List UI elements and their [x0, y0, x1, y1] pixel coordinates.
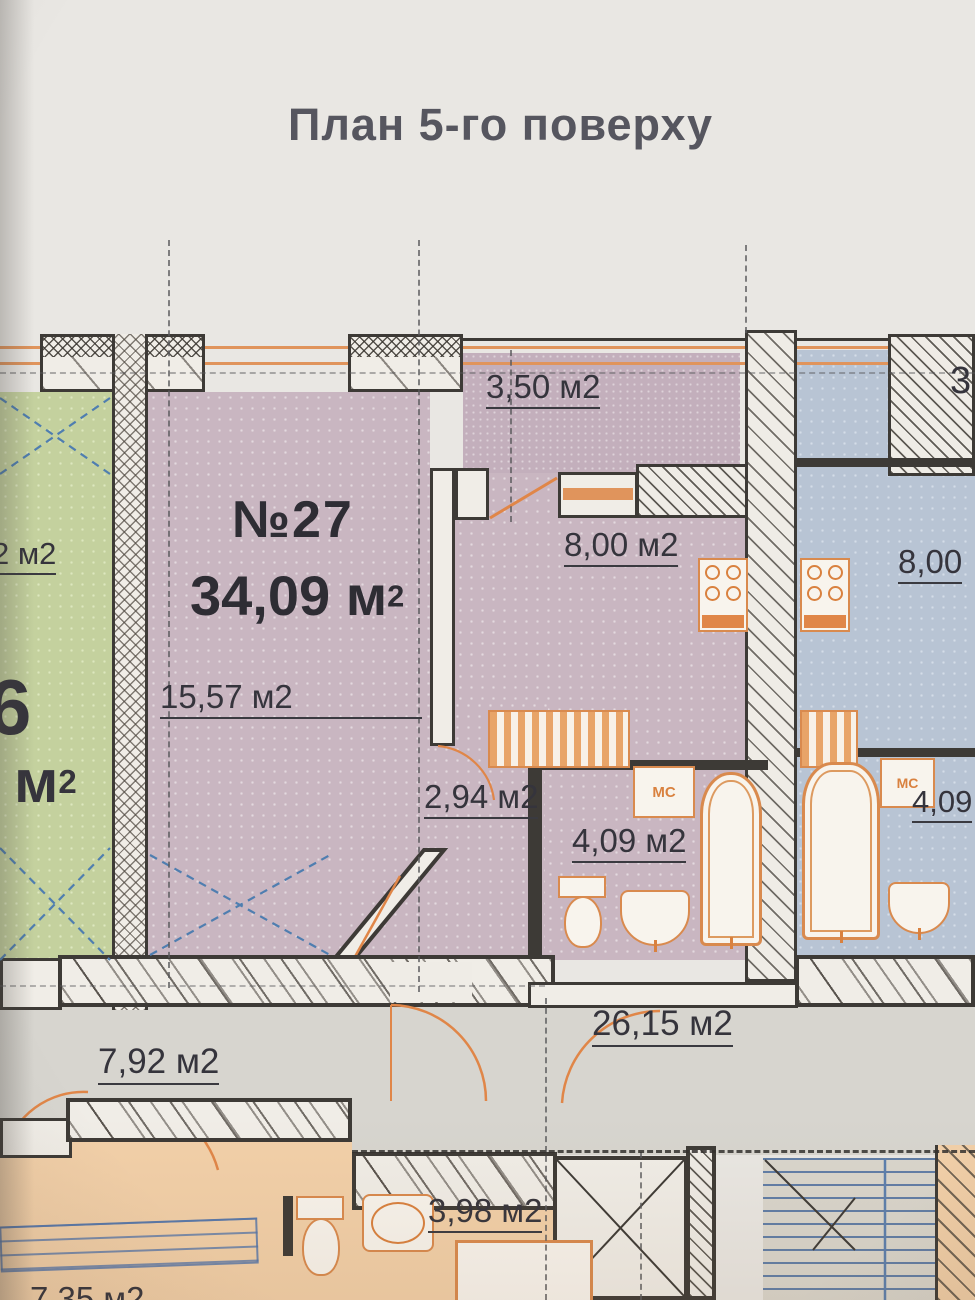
axis-line: [168, 240, 170, 988]
facade-pier-right: [888, 334, 975, 476]
shower-room-lower: [455, 1240, 593, 1300]
washing-machine-icon-apt27: МС: [633, 766, 695, 818]
apt27-balcony-area-label: 3,50 м2: [486, 370, 600, 409]
facade-pier-mid: [348, 334, 463, 392]
living-room-chamfer-wall: [322, 838, 447, 968]
right-apartment-kitchen-area-label: 8,00: [898, 545, 962, 584]
axis-line: [0, 985, 545, 987]
entry-hall-area-label: 7,92 м2: [98, 1044, 219, 1085]
wall-left-column: [112, 334, 148, 1010]
left-apartment-total-digit-label: 6: [0, 668, 31, 746]
kitchen-counter-right-apartment: [800, 710, 858, 768]
stove-icon-apt27: [698, 558, 748, 632]
balcony-door-jamb: [455, 468, 489, 520]
wall-apartments-corridor: [58, 955, 555, 1007]
toilet-tank-icon-apt27: [558, 876, 606, 898]
axis-line: [545, 998, 547, 1300]
bathtub-icon-apt27: [700, 772, 762, 946]
toilet-partition-lower: [283, 1196, 293, 1256]
right-apartment-balcony-area-label: 3: [950, 362, 971, 400]
cross-mark-green-bottom: [0, 845, 112, 963]
page-title: План 5-го поверху: [288, 102, 713, 147]
apt27-total-area-label: 34,09 м2: [190, 568, 404, 624]
kitchen-counter-apt27: [488, 710, 630, 768]
apt27-hall-area-label: 2,94 м2: [424, 780, 538, 819]
wall-bottom-left-step: [0, 958, 62, 1010]
apt27-entrance-gap: [390, 962, 472, 1002]
wall-right-apartment-corridor: [795, 955, 975, 1007]
bathtub-icon-right-apartment: [802, 762, 880, 940]
staircase: [763, 1158, 937, 1300]
axis-line: [745, 245, 747, 333]
wall-corridor-bottom-left: [66, 1098, 352, 1142]
toilet-bowl-icon-apt27: [564, 896, 602, 948]
wall-balcony-kitchen: [636, 464, 748, 518]
left-apartment-total-unit-label: м2: [14, 752, 77, 812]
sink-icon-lower: [362, 1194, 434, 1252]
left-apartment-room-area-label: 2 м2: [0, 538, 56, 575]
wall-bottom-right-hatch: [935, 1145, 975, 1300]
cross-mark-living-bottom: [148, 852, 333, 958]
balcony-window: [558, 472, 638, 518]
axis-line: [352, 1150, 975, 1153]
stove-icon-right-apartment: [800, 558, 850, 632]
apt27-kitchen-area-label: 8,00 м2: [564, 528, 678, 567]
apt27-entrance-door-arc: [385, 1002, 500, 1110]
apt27-bathroom-area-label: 4,09 м2: [572, 824, 686, 863]
wall-living-kitchen: [430, 468, 455, 746]
wall-right-kitchen-top: [795, 458, 975, 467]
balcony-door-leaf: [487, 472, 562, 522]
wall-stair-column: [686, 1146, 716, 1300]
lower-partial-area-label: 7,35 м2: [30, 1282, 144, 1300]
apt27-living-area-label: 15,57 м2: [160, 680, 422, 719]
right-apartment-bathroom-area-label: 4,09: [912, 786, 972, 823]
toilet-bowl-icon-lower: [302, 1218, 340, 1276]
axis-line: [418, 240, 420, 992]
axis-line: [640, 1152, 642, 1300]
corridor-area-label: 26,15 м2: [592, 1006, 733, 1047]
apt27-number-label: №27: [232, 494, 354, 546]
wall-corridor-bottom-left-low: [0, 1118, 72, 1158]
lower-room-area-label: 3,98 м2: [428, 1194, 542, 1233]
balcony-outer-edge: [463, 338, 915, 341]
toilet-tank-icon-lower: [296, 1196, 344, 1220]
washer-label: МС: [635, 785, 693, 800]
cross-mark-green-top: [0, 396, 112, 476]
floor-plan-photo: План 5-го поверху: [0, 0, 975, 1300]
stair-steps-lower-left: [0, 1218, 259, 1273]
